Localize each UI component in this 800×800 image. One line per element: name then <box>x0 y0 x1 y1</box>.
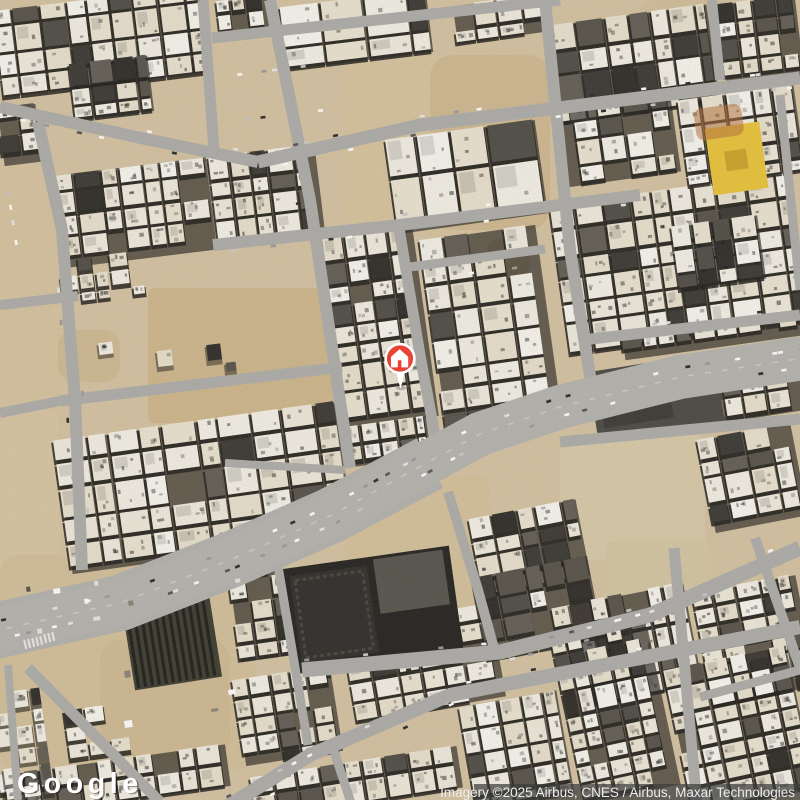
svg-text:Imagery ©2025 Airbus, CNES / A: Imagery ©2025 Airbus, CNES / Airbus, Max… <box>440 785 795 800</box>
svg-text:Google: Google <box>17 768 143 800</box>
